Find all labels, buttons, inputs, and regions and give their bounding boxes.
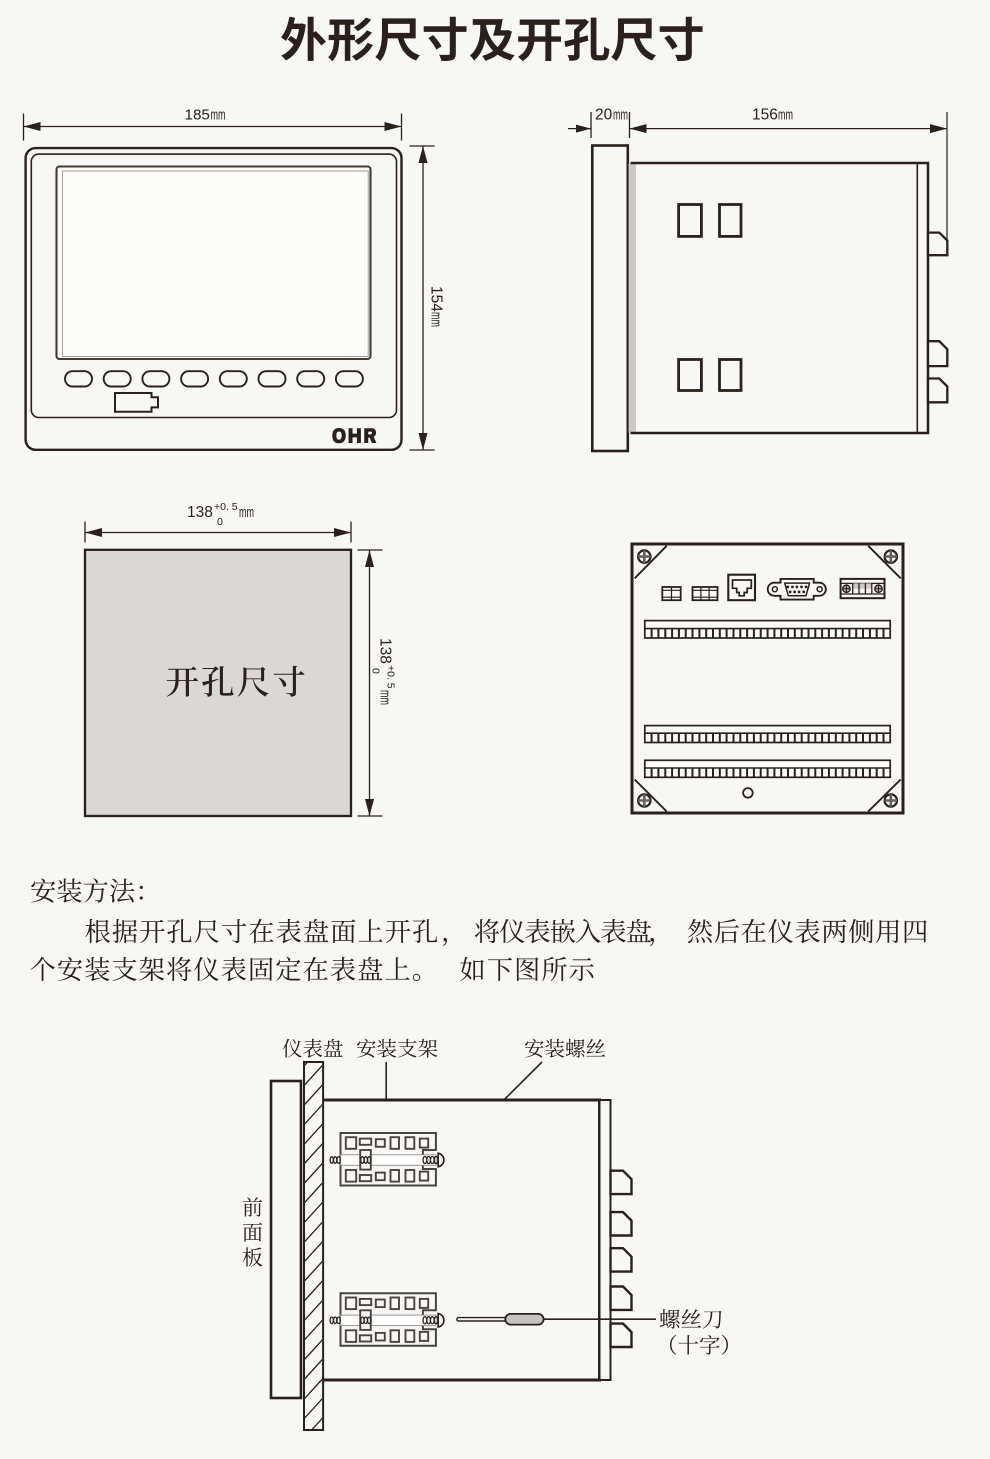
svg-text:mm: mm bbox=[428, 312, 445, 327]
svg-text:156: 156 bbox=[752, 107, 778, 124]
svg-text:154: 154 bbox=[428, 286, 445, 312]
svg-text:0: 0 bbox=[370, 668, 382, 674]
svg-text:mm: mm bbox=[613, 106, 628, 123]
svg-text:+0. 5: +0. 5 bbox=[385, 665, 397, 689]
svg-text:20: 20 bbox=[595, 107, 613, 124]
svg-text:185: 185 bbox=[185, 107, 210, 124]
svg-text:mm: mm bbox=[211, 106, 226, 123]
svg-text:mm: mm bbox=[778, 106, 793, 123]
svg-text:+0. 5: +0. 5 bbox=[214, 501, 238, 513]
svg-text:mm: mm bbox=[377, 690, 394, 705]
svg-text:138: 138 bbox=[187, 504, 213, 521]
svg-text:0: 0 bbox=[217, 516, 223, 528]
svg-text:mm: mm bbox=[239, 504, 254, 521]
svg-text:138: 138 bbox=[377, 638, 394, 664]
